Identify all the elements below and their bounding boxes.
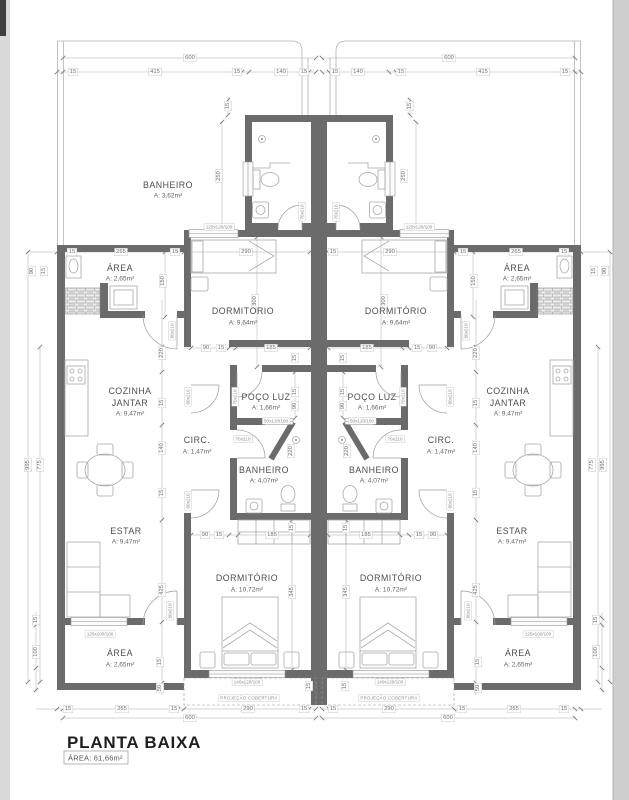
toilet-tank — [253, 170, 260, 189]
room-label: A: 1,66m² — [252, 405, 281, 412]
dim-label: 220 — [288, 446, 294, 456]
dim-label: 15 — [593, 617, 599, 623]
opening-label: 80x210 — [448, 389, 453, 405]
dim-label: 995 — [25, 460, 31, 470]
dim-label: 15 — [343, 525, 349, 531]
room-label: DORMITÓRIO — [365, 306, 427, 316]
dim-label: 995 — [600, 460, 606, 470]
dim-label: 300 — [381, 296, 387, 306]
dim-label: 15 — [475, 659, 481, 665]
floor-plan-page: 6006001541515140151514015415151515250250… — [0, 0, 629, 800]
room-label: BANHEIRO — [349, 465, 399, 475]
room-label: A: 10,72m² — [231, 587, 264, 594]
dim-label: 15 — [340, 389, 346, 395]
dim-label: 265 — [116, 249, 126, 255]
dim-label: 185 — [361, 532, 371, 538]
dim-label: 290 — [385, 249, 395, 255]
floor-plan-drawing: 6006001541515140151514015415151515250250… — [0, 0, 629, 800]
dim-label: 15 — [218, 345, 224, 351]
room-label: A: 9,47m² — [112, 539, 141, 546]
pillow — [251, 653, 276, 665]
dim-label: 150 — [471, 276, 477, 286]
dim-label: 220 — [159, 348, 165, 358]
sink — [253, 202, 269, 218]
dim-label: 15 — [289, 525, 295, 531]
note-label: PROJEÇÃO COBERTURA — [220, 696, 277, 701]
bed-double — [222, 597, 278, 668]
nightstand — [200, 652, 215, 668]
dim-label: 15 — [591, 268, 597, 274]
room-label: A: 2,65m² — [504, 662, 533, 669]
dim-label: 600 — [185, 715, 195, 721]
sink — [246, 499, 262, 513]
dim-label: 150 — [160, 276, 166, 286]
opening-label: 125x100/100 — [525, 632, 552, 637]
opening-label: 70x210 — [235, 437, 251, 442]
dim-label: 415 — [150, 69, 160, 75]
pillow — [224, 653, 249, 665]
opening-label: 70x210 — [334, 204, 339, 220]
dim-label: 290 — [384, 706, 394, 712]
dim-label: 15 — [414, 345, 420, 351]
opening-label: 125x120/100 — [206, 225, 233, 230]
room-label: BANHEIRO — [143, 180, 193, 190]
opening-label: 80x210 — [168, 603, 173, 619]
dim-label: 15 — [340, 355, 346, 361]
dim-label: 15 — [69, 249, 75, 255]
dim-label: 15 — [342, 683, 348, 689]
dim-label: 90 — [602, 268, 608, 274]
opening-label: 50x120/100 — [264, 419, 288, 424]
dim-label: 50 — [157, 685, 163, 691]
dim-label: 15 — [33, 617, 39, 623]
dim-label: 265 — [511, 249, 521, 255]
dim-label: 425 — [159, 585, 165, 595]
dim-label: 345 — [289, 587, 295, 597]
opening-label: 70x210 — [401, 389, 406, 405]
dim-label: 185 — [266, 345, 276, 351]
dim-label: 15 — [171, 706, 177, 712]
dim-label: 415 — [478, 69, 488, 75]
room-label: A: 10,72m² — [375, 587, 408, 594]
opening-label: 80x210 — [186, 493, 191, 509]
dim-label: 15 — [332, 69, 338, 75]
shower-divider — [252, 163, 290, 168]
room-label: A: 4,07m² — [250, 478, 279, 485]
dim-label: 290 — [241, 249, 251, 255]
dim-label: 15 — [459, 706, 465, 712]
dim-label: 250 — [216, 171, 222, 181]
dim-label: 90 — [29, 268, 35, 274]
room-label: POÇO LUZ — [348, 392, 397, 402]
dim-label: 600 — [444, 55, 454, 61]
dim-label: 265 — [117, 706, 127, 712]
room-label: DORMITÓRIO — [360, 573, 422, 583]
dim-label: 185 — [267, 532, 277, 538]
room-label: A: 2,65m² — [106, 662, 135, 669]
dim-label: 345 — [343, 587, 349, 597]
room-label: CIRC. — [428, 435, 454, 445]
note-label: PROJEÇÃO COBERTURA — [360, 696, 417, 701]
nightstand — [284, 652, 299, 668]
chair — [97, 485, 113, 496]
dim-label: 15 — [65, 706, 71, 712]
door-swings — [143, 205, 302, 625]
dim-label: 15 — [306, 683, 312, 689]
dim-label: 185 — [362, 345, 372, 351]
dining-table — [85, 454, 125, 486]
dim-label: 15 — [159, 490, 165, 496]
dim-label: 15 — [473, 400, 479, 406]
room-label: COZINHA — [108, 386, 151, 396]
dim-label: 220 — [344, 446, 350, 456]
scan-corner-mark — [0, 0, 6, 36]
opening-label: 50x120/100 — [350, 419, 374, 424]
opening-label: 80x210 — [170, 323, 175, 339]
room-label: ESTAR — [496, 526, 527, 536]
opening-label: 125x120/100 — [406, 225, 433, 230]
dim-label: 15 — [292, 355, 298, 361]
room-label: A: 9,47m² — [116, 411, 145, 418]
dim-label: 100 — [593, 647, 599, 657]
toilet-bowl — [261, 173, 279, 187]
dim-label: 15 — [562, 69, 568, 75]
room-label: COZINHA — [486, 386, 529, 396]
room-label: JANTAR — [490, 398, 527, 408]
dim-label: 15 — [407, 103, 413, 109]
bed-single — [191, 240, 276, 273]
opening-label: 80x210 — [466, 603, 471, 619]
dim-label: 50 — [475, 685, 481, 691]
dim-label: 90 — [203, 345, 209, 351]
dim-label: 15 — [225, 103, 231, 109]
room-label: A: 9,47m² — [498, 539, 527, 546]
room-label: BANHEIRO — [239, 465, 289, 475]
opening-label: 70x210 — [233, 389, 238, 405]
room-label: A: 2,65m² — [503, 276, 532, 283]
dim-label: 15 — [172, 249, 178, 255]
room-label: DORMITÓRIO — [216, 573, 278, 583]
dim-label: 15 — [330, 706, 336, 712]
dim-label: 15 — [460, 249, 466, 255]
room-label: ÁREA — [107, 648, 133, 658]
dim-label: 15 — [216, 532, 222, 538]
lot-boundary-lines — [57, 41, 308, 245]
dim-label: 90 — [430, 532, 436, 538]
dim-label: 15 — [159, 400, 165, 406]
dim-label: 140 — [276, 69, 286, 75]
dim-label: 220 — [473, 348, 479, 358]
opening-label: 80x210 — [448, 493, 453, 509]
toilet-bowl — [281, 486, 295, 503]
dim-label: 300 — [252, 296, 258, 306]
dim-label: 15 — [292, 389, 298, 395]
dim-label: 90 — [429, 345, 435, 351]
opening-label: 140x120/100 — [377, 680, 404, 685]
dim-label: 15 — [330, 249, 336, 255]
room-label: A: 4,07m² — [360, 478, 389, 485]
stove — [67, 366, 85, 384]
dim-label: 140 — [159, 443, 165, 453]
hatch-area — [65, 288, 100, 314]
room-label: A: 9,64m² — [382, 320, 411, 327]
dim-label: 140 — [473, 443, 479, 453]
opening-label: 140x120/100 — [234, 680, 261, 685]
dim-label: 15 — [398, 69, 404, 75]
room-label: A: 1,66m² — [358, 405, 387, 412]
opening-label: 70x210 — [387, 437, 403, 442]
room-label: ÁREA — [107, 263, 133, 273]
opening-label: 125x100/100 — [87, 632, 114, 637]
dim-label: 425 — [473, 585, 479, 595]
dim-label: 100 — [33, 647, 39, 657]
room-label: CIRC. — [184, 435, 210, 445]
room-label: A: 9,64m² — [229, 320, 258, 327]
room-label: A: 9,47m² — [494, 411, 523, 418]
nightstand — [191, 277, 208, 291]
dim-label: 140 — [353, 69, 363, 75]
dim-label: 90 — [202, 532, 208, 538]
sofa — [67, 542, 100, 617]
room-label: POÇO LUZ — [242, 392, 291, 402]
room-label: ÁREA — [504, 263, 530, 273]
dim-label: 600 — [185, 55, 195, 61]
dim-label: 15 — [561, 706, 567, 712]
dim-label: 90 — [292, 403, 298, 409]
dim-label: 15 — [301, 706, 307, 712]
dim-label: 600 — [443, 715, 453, 721]
opening-label: 70x210 — [300, 204, 305, 220]
toilet-tank — [281, 504, 295, 511]
room-label: A: 1,47m² — [183, 449, 212, 456]
title-block: PLANTA BAIXA ÁREA: 61,66m² — [64, 733, 201, 764]
dim-label: 775 — [589, 460, 595, 470]
room-label: JANTAR — [112, 398, 149, 408]
dim-label: 290 — [243, 706, 253, 712]
kitchen-counter — [65, 360, 88, 436]
dim-label: 15 — [157, 659, 163, 665]
dim-label: 250 — [401, 171, 407, 181]
room-label: DORMITÓRIO — [212, 306, 274, 316]
dim-label: 15 — [41, 268, 47, 274]
room-label: A: 2,65m² — [106, 276, 135, 283]
area-total-label: ÁREA: 61,66m² — [68, 754, 123, 763]
room-label: ÁREA — [505, 648, 531, 658]
drawing-title: PLANTA BAIXA — [67, 733, 201, 752]
dim-label: 15 — [301, 69, 307, 75]
dim-label: 15 — [561, 249, 567, 255]
dim-label: 775 — [37, 460, 43, 470]
chair — [97, 444, 113, 455]
room-label: A: 1,47m² — [427, 449, 456, 456]
dim-label: 90 — [340, 403, 346, 409]
dim-label: 265 — [509, 706, 519, 712]
dim-label: 15 — [234, 69, 240, 75]
room-label: A: 3,62m² — [154, 193, 183, 200]
dim-label: 15 — [70, 69, 76, 75]
opening-label: 80x210 — [464, 323, 469, 339]
opening-label: 80x210 — [186, 389, 191, 405]
dim-label: 15 — [416, 532, 422, 538]
dim-label: 15 — [473, 490, 479, 496]
room-label: ESTAR — [110, 526, 141, 536]
